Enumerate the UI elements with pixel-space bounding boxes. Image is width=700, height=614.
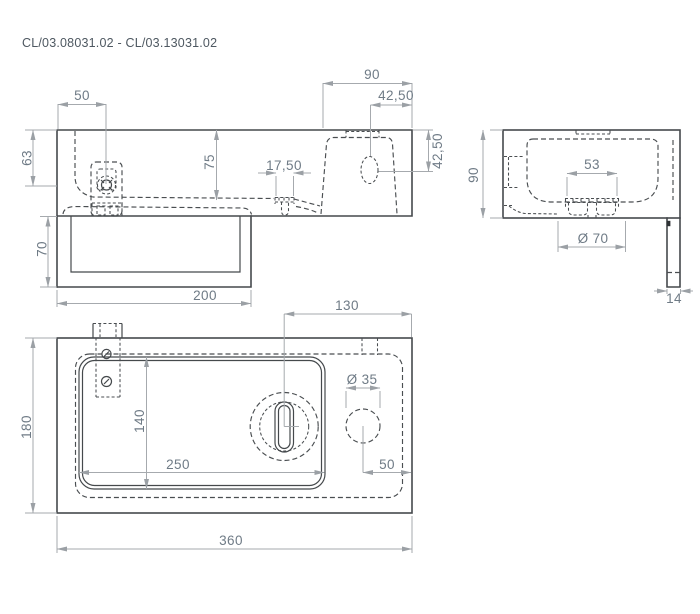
front-overflow-hole <box>361 157 378 184</box>
side-view: 90 53 Ø 70 14 <box>466 130 693 306</box>
dim-label-side-dia70: Ø 70 <box>578 231 609 246</box>
dim-label-top-180: 180 <box>19 415 34 439</box>
side-tap-hole-hidden <box>576 131 610 135</box>
side-front-wall-hidden <box>504 157 524 206</box>
dim-label-front-50: 50 <box>74 88 90 103</box>
dim-label-front-90: 90 <box>364 67 380 82</box>
dim-label-front-1750: 17,50 <box>266 158 302 173</box>
dim-label-side-53: 53 <box>584 157 600 172</box>
drawing-title: CL/03.08031.02 - CL/03.13031.02 <box>22 36 217 50</box>
front-drain-flange-hidden <box>275 198 294 205</box>
top-dim130-ext <box>284 314 411 427</box>
front-tap-hole-hidden <box>346 131 379 138</box>
side-underside-hidden <box>509 206 558 214</box>
dim-label-top-250: 250 <box>166 457 190 472</box>
front-dim50-ext <box>58 104 106 184</box>
dim-label-top-50: 50 <box>379 457 395 472</box>
top-faucet-plate-sides <box>93 324 122 339</box>
dim-label-front-4250-top: 42,50 <box>378 88 414 103</box>
top-dim35dia-ext <box>346 391 380 408</box>
front-dim200-ext <box>57 290 251 307</box>
front-dim1750-ext <box>276 176 294 196</box>
top-basin-outer <box>79 357 325 489</box>
top-bracket-screw-slots <box>104 352 109 385</box>
dim-label-top-dia35: Ø 35 <box>347 372 378 387</box>
dim-label-front-75: 75 <box>202 154 217 170</box>
dim-label-front-70: 70 <box>35 241 50 257</box>
side-towel-panel-outline <box>667 218 680 287</box>
front-basin-hidden-back <box>75 131 274 199</box>
side-drain-trap-hidden <box>569 203 616 219</box>
front-faucet-valve-left <box>97 206 105 215</box>
front-towel-rail-opening <box>71 216 240 272</box>
front-drain-tail-hidden <box>282 202 289 215</box>
dim-label-top-360: 360 <box>219 533 243 548</box>
dim-label-top-130: 130 <box>335 298 359 313</box>
dim-label-side-90: 90 <box>466 167 481 183</box>
dim-label-front-63: 63 <box>20 150 35 166</box>
dim-label-side-14: 14 <box>666 291 682 306</box>
top-view: 130 180 140 250 Ø 35 50 360 <box>19 298 412 553</box>
front-dim4250side-ext <box>379 130 434 172</box>
front-pedestal-hidden <box>321 138 397 215</box>
top-faucet-plate-hidden <box>93 324 122 338</box>
technical-drawing-page: CL/03.08031.02 - CL/03.13031.02 50 <box>0 0 700 614</box>
side-dim53-ext <box>567 177 617 196</box>
front-basin-hidden-right <box>294 199 320 213</box>
top-overflow-hidden <box>362 338 378 355</box>
front-view: 50 63 75 90 42,50 42,50 17,50 70 200 <box>20 67 446 307</box>
top-basin-inner <box>83 361 322 486</box>
side-drain-flange-hidden <box>565 199 619 208</box>
top-bracket-hidden <box>96 338 120 398</box>
top-body-outline <box>57 338 412 513</box>
dim-label-front-4250-side: 42,50 <box>430 133 445 169</box>
dim-label-top-140: 140 <box>132 409 147 433</box>
side-dim90-ext <box>490 130 503 218</box>
front-towel-rail-outline <box>57 216 251 287</box>
drawing-canvas: CL/03.08031.02 - CL/03.13031.02 50 <box>0 0 700 614</box>
side-fixing-screw <box>667 221 671 226</box>
dim-label-front-200: 200 <box>193 288 217 303</box>
